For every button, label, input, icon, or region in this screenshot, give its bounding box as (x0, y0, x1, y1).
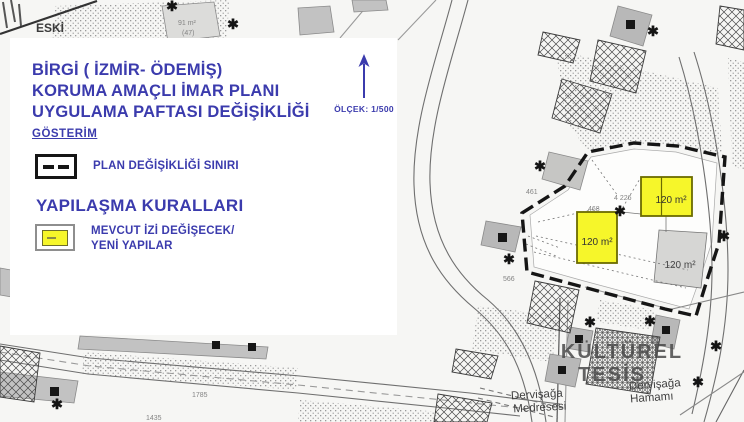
monument-star-icon: ✱ (227, 16, 239, 32)
parcel-area-label: 91 m² (178, 20, 197, 27)
new-buildings-label: MEVCUT İZİ DEĞİŞECEK/ YENİ YAPILAR (91, 224, 235, 254)
monument-star-icon: ✱ (614, 203, 626, 219)
plan-title: BİRGİ ( İZMİR- ÖDEMİŞ) KORUMA AMAÇLI İMA… (32, 60, 310, 123)
boundary-symbol-icon (35, 154, 77, 179)
monument-star-icon: ✱ (718, 228, 730, 244)
parcel-number: 1435 (146, 415, 162, 422)
yellow-building-swatch (42, 230, 68, 246)
monument-star-icon: ✱ (166, 0, 178, 14)
eski-label: ESKİ (36, 20, 64, 35)
yellow-building-2-area-label: 120 m² (655, 195, 687, 206)
gray-parcel-area-label: 120 m² (664, 260, 696, 271)
rules-header: YAPILAŞMA KURALLARI (36, 196, 244, 216)
parcel-number: (47) (182, 30, 194, 37)
yellow-building-1-area-label: 120 m² (581, 237, 613, 248)
parcel-number: 461 (526, 189, 538, 196)
north-arrow-icon (356, 54, 372, 100)
plan-title-line2: KORUMA AMAÇLI İMAR PLANI (32, 81, 310, 102)
plan-title-line1: BİRGİ ( İZMİR- ÖDEMİŞ) (32, 60, 310, 81)
parcel-number: 468 (588, 206, 600, 213)
monument-star-icon: ✱ (647, 23, 659, 39)
new-buildings-label-line1: MEVCUT İZİ DEĞİŞECEK/ (91, 224, 235, 239)
monument-star-icon: ✱ (503, 251, 515, 267)
scale-label: ÖLÇEK: 1/500 (306, 104, 422, 114)
legend-panel: BİRGİ ( İZMİR- ÖDEMİŞ) KORUMA AMAÇLI İMA… (10, 38, 397, 335)
boundary-dash (58, 165, 69, 169)
monument-star-icon: ✱ (51, 396, 63, 412)
new-buildings-label-line2: YENİ YAPILAR (91, 239, 235, 254)
monument-star-icon: ✱ (584, 314, 596, 330)
legend-row-boundary: PLAN DEĞİŞİKLİĞİ SINIRI (35, 154, 239, 179)
parcel-number: 566 (503, 276, 515, 283)
plan-title-line3: UYGULAMA PAFTASI DEĞİŞİKLİĞİ (32, 102, 310, 123)
boundary-label: PLAN DEĞİŞİKLİĞİ SINIRI (93, 159, 239, 174)
parcel-number: 4 226 (614, 195, 632, 202)
legend-row-new-buildings: MEVCUT İZİ DEĞİŞECEK/ YENİ YAPILAR (35, 224, 235, 254)
plan-sheet: ✱ ✱ ✱ ✱ ✱ ✱ ✱ ✱ ✱ ✱ ✱ ✱ ESKİ 91 m² (47) … (0, 0, 744, 422)
monument-star-icon: ✱ (692, 374, 704, 390)
new-building-symbol-icon (35, 224, 75, 251)
monument-star-icon: ✱ (644, 313, 656, 329)
kulturel-tesis-label-line1: KÜLTÜREL (561, 340, 683, 363)
legend-header: GÖSTERİM (32, 128, 97, 140)
monument-star-icon: ✱ (534, 158, 546, 174)
parcel-number: 1785 (192, 392, 208, 399)
monument-star-icon: ✱ (710, 338, 722, 354)
swatch-dash (47, 237, 56, 239)
boundary-dash (43, 165, 54, 169)
